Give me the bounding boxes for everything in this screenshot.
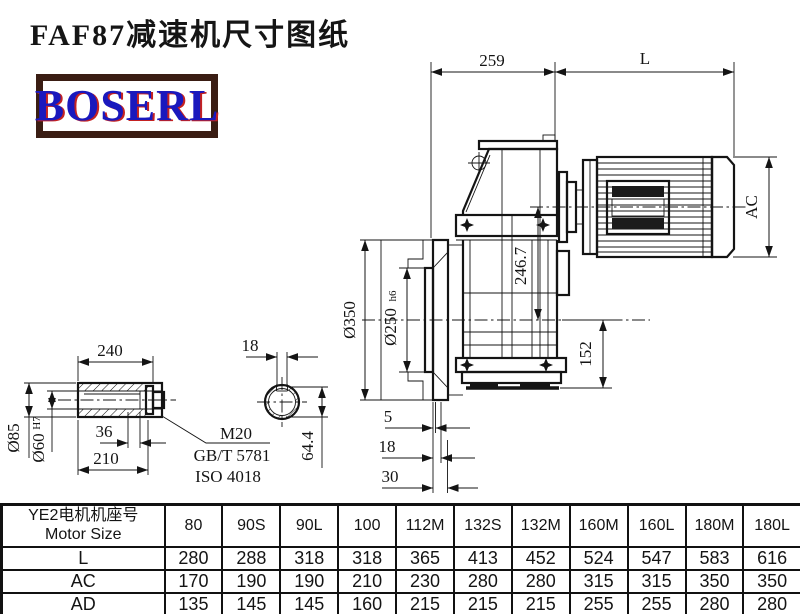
dimension-value-cell: 318 <box>280 547 338 570</box>
dim-246-label: 246.7 <box>511 246 530 285</box>
dimension-value-cell: 215 <box>512 593 570 614</box>
dimension-value-cell: 230 <box>396 570 454 593</box>
motor-frame-column-header: 132M <box>512 505 570 547</box>
dimension-value-cell: 547 <box>628 547 686 570</box>
gb-standard-label: GB/T 5781 <box>194 446 271 465</box>
motor-frame-column-header: 180M <box>686 505 744 547</box>
dimension-value-cell: 583 <box>686 547 744 570</box>
motor-cooling-fins <box>598 163 711 252</box>
dim-259-label: 259 <box>479 51 505 70</box>
dimension-value-cell: 452 <box>512 547 570 570</box>
dimension-value-cell: 524 <box>570 547 628 570</box>
dim-30-label: 30 <box>382 467 399 486</box>
dimension-value-cell: 280 <box>686 593 744 614</box>
dim-5-label: 5 <box>384 407 393 426</box>
dimension-value-cell: 315 <box>570 570 628 593</box>
motor-frame-column-header: 160L <box>628 505 686 547</box>
dimension-value-cell: 315 <box>628 570 686 593</box>
dim-350-label: Ø350 <box>340 301 359 339</box>
drawing-sheet: FAF87减速机尺寸图纸 BOSERL <box>0 0 800 614</box>
iso-standard-label: ISO 4018 <box>195 467 261 486</box>
dimension-value-cell: 280 <box>454 570 512 593</box>
dimension-row-label: L <box>2 547 165 570</box>
dim-152-label: 152 <box>576 341 595 367</box>
dimension-value-cell: 210 <box>338 570 396 593</box>
motor-frame-column-header: 160M <box>570 505 628 547</box>
bolt-diamond-icon <box>460 358 474 372</box>
dimension-value-cell: 135 <box>165 593 223 614</box>
dimension-value-cell: 280 <box>512 570 570 593</box>
dim-250-label: Ø250 <box>381 308 400 346</box>
dimension-value-cell: 255 <box>628 593 686 614</box>
dimension-value-cell: 145 <box>280 593 338 614</box>
table-header-row: YE2电机机座号 Motor Size 8090S90L100112M132S1… <box>2 505 800 547</box>
dim-36-label: 36 <box>96 422 113 441</box>
dim-AC-label: AC <box>742 195 761 219</box>
foot-pad <box>470 383 498 389</box>
foot-pad <box>520 383 550 389</box>
dimension-value-cell: 215 <box>396 593 454 614</box>
motor-frame-column-header: 132S <box>454 505 512 547</box>
motor-frame-column-header: 90L <box>280 505 338 547</box>
motor-frame-column-header: 90S <box>222 505 280 547</box>
dimension-row-AC: AC170190190210230280280315315350350 <box>2 570 800 593</box>
dim-18-label: 18 <box>379 437 396 456</box>
dimension-value-cell: 365 <box>396 547 454 570</box>
dimension-value-cell: 190 <box>222 570 280 593</box>
dimension-row-L: L280288318318365413452524547583616 <box>2 547 800 570</box>
dim-60-label: Ø60 <box>29 433 48 462</box>
main-view: 259 L AC 246.7 Ø350 Ø250 h <box>340 49 777 493</box>
dim-210-label: 210 <box>93 449 119 468</box>
motor-frame-column-header: 100 <box>338 505 396 547</box>
motor-size-header-en: Motor Size <box>3 526 164 544</box>
dim-250-tol-label: h6 <box>387 290 399 302</box>
motor-size-header-cn: YE2电机机座号 <box>3 507 164 525</box>
motor-frame-column-header: 180L <box>743 505 800 547</box>
dimension-table: YE2电机机座号 Motor Size 8090S90L100112M132S1… <box>0 503 800 614</box>
dim-L-label: L <box>640 49 650 68</box>
dimension-value-cell: 280 <box>743 593 800 614</box>
dim-644-label: 64.4 <box>298 431 317 461</box>
dimension-value-cell: 190 <box>280 570 338 593</box>
bolt-diamond-icon <box>460 218 474 232</box>
dim-240-label: 240 <box>97 341 123 360</box>
dimension-row-label: AC <box>2 570 165 593</box>
dim-keyway-18-label: 18 <box>242 336 259 355</box>
dimension-value-cell: 616 <box>743 547 800 570</box>
dimension-value-cell: 413 <box>454 547 512 570</box>
dimension-value-cell: 145 <box>222 593 280 614</box>
dimension-value-cell: 280 <box>165 547 223 570</box>
dimension-row-label: AD <box>2 593 165 614</box>
dimension-value-cell: 160 <box>338 593 396 614</box>
thread-spec-label: M20 <box>220 424 252 443</box>
shaft-detail-view: 240 36 210 Ø85 Ø60 H7 <box>4 341 270 486</box>
dimension-value-cell: 350 <box>743 570 800 593</box>
dimension-table-body: YE2电机机座号 Motor Size 8090S90L100112M132S1… <box>2 505 800 614</box>
dimension-value-cell: 215 <box>454 593 512 614</box>
dimension-value-cell: 288 <box>222 547 280 570</box>
main-view-dimensions: 259 L AC 246.7 Ø350 Ø250 h <box>340 49 777 493</box>
bolt-diamond-icon <box>539 358 553 372</box>
dim-60-tol-label: H7 <box>31 416 43 430</box>
technical-drawing: 259 L AC 246.7 Ø350 Ø250 h <box>0 0 800 503</box>
dim-85-label: Ø85 <box>4 423 23 452</box>
dimension-row-AD: AD135145145160215215215255255280280 <box>2 593 800 614</box>
dimension-value-cell: 350 <box>686 570 744 593</box>
motor-frame-column-header: 112M <box>396 505 454 547</box>
dimension-value-cell: 318 <box>338 547 396 570</box>
motor-frame-column-header: 80 <box>165 505 223 547</box>
dimension-value-cell: 255 <box>570 593 628 614</box>
motor-size-header: YE2电机机座号 Motor Size <box>2 505 165 547</box>
dimension-value-cell: 170 <box>165 570 223 593</box>
